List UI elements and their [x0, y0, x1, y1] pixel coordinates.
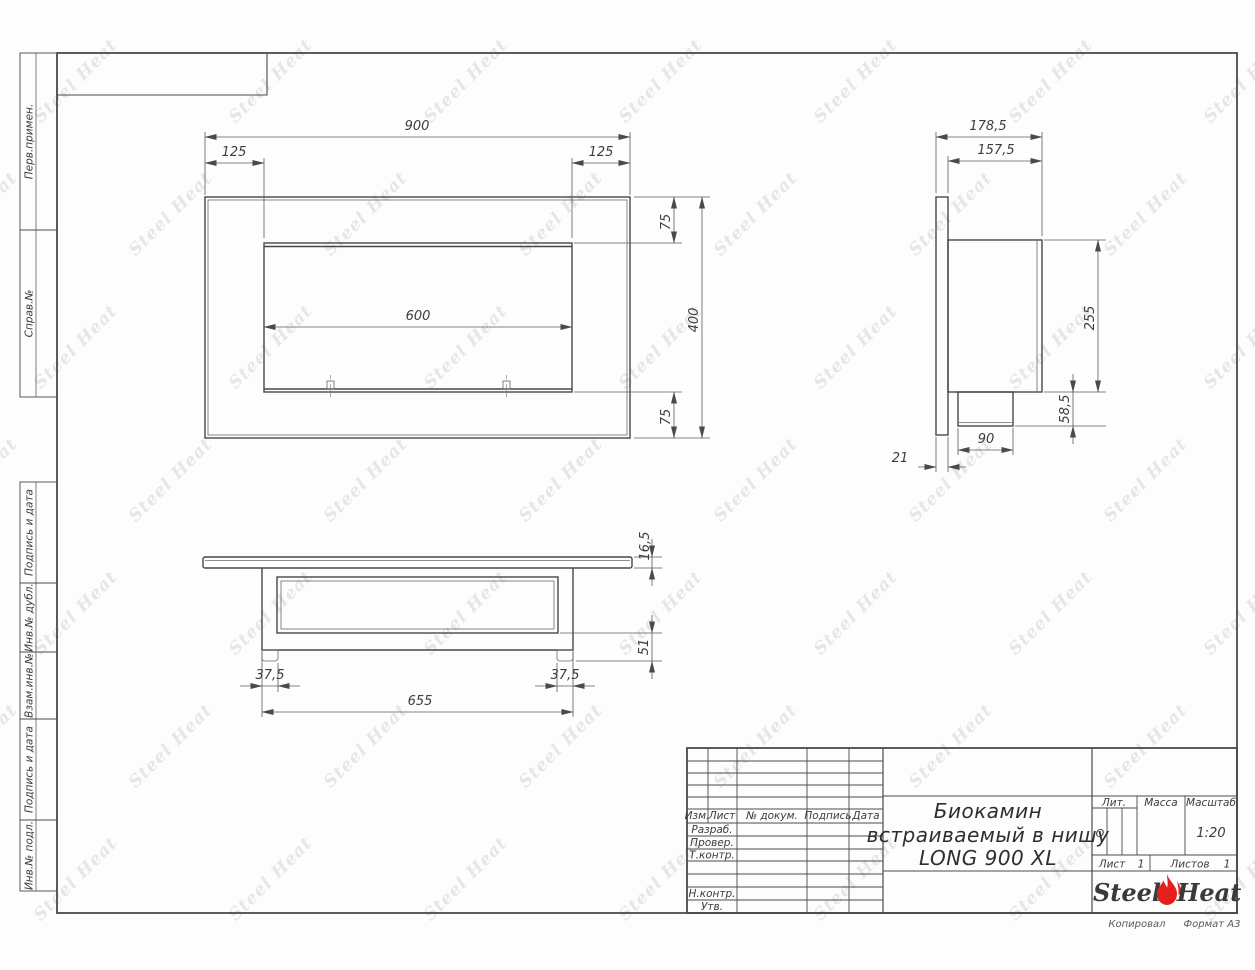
sheets-value: 1: [1224, 858, 1231, 871]
bottom-view: [203, 557, 632, 661]
dim-side-panel-thickness: 21: [892, 437, 966, 472]
scale-value: 1:20: [1196, 826, 1225, 841]
col-list: Лист: [708, 810, 736, 822]
dim-front-top-offset-value: 75: [659, 214, 674, 231]
change-table-header: Изм. Лист № докум. Подпись Дата: [685, 810, 880, 822]
lit-mass-scale: Лит. Масса Масштаб О 1:20: [1096, 797, 1237, 841]
dim-bottom-body-length: 655: [262, 694, 573, 712]
dim-front-right-offset: 125: [572, 145, 630, 238]
title-line-2: встраиваемый в нишу: [867, 823, 1110, 847]
dim-bottom-left-foot-offset: 37,5: [240, 652, 300, 717]
dim-side-body-depth: 157,5: [948, 143, 1042, 193]
dim-front-total-height-value: 400: [687, 308, 702, 333]
dim-front-top-offset: 75: [574, 197, 710, 243]
logo-heat-text: Heat: [1176, 878, 1242, 907]
dim-side-total-depth-value: 178,5: [969, 119, 1006, 134]
drawing-sheet: Steel HeatSteel HeatSteel HeatSteel Heat…: [0, 0, 1255, 970]
dim-front-left-offset: 125: [205, 145, 264, 238]
dim-front-right-offset-value: 125: [589, 145, 614, 160]
margin-label-inv-podl: Инв.№ подл.: [24, 821, 36, 890]
title-block: Изм. Лист № докум. Подпись Дата Разраб. …: [685, 748, 1242, 913]
row-tkontr: Т.контр.: [689, 850, 735, 862]
title-line-3: LONG 900 XL: [919, 846, 1057, 870]
sheet-label: Лист: [1098, 859, 1126, 871]
dim-bottom-panel-thickness: 16,5: [634, 532, 662, 586]
margin-label-podpis-data-1: Подпись и дата: [24, 489, 36, 576]
sheet-value: 1: [1138, 858, 1145, 871]
scale-label: Масштаб: [1186, 797, 1236, 809]
drawing-title: Биокамин встраиваемый в нишу LONG 900 XL: [867, 799, 1110, 870]
logo-steel-text: Steel: [1093, 878, 1161, 907]
dim-bottom-body-length-value: 655: [408, 694, 433, 709]
lit-value: О: [1096, 827, 1105, 840]
row-prover: Провер.: [690, 837, 734, 849]
dim-side-burner-width: 90: [958, 428, 1013, 455]
col-doc: № докум.: [745, 810, 798, 822]
dim-front-bottom-offset-value: 75: [659, 409, 674, 426]
sheet-frame: [57, 53, 1237, 913]
side-view-dimensions: 178,5 157,5 255 58,5 90: [892, 119, 1106, 472]
row-razrab: Разраб.: [691, 824, 732, 836]
steelheat-logo: Steel Heat: [1093, 874, 1241, 907]
dim-side-burner-width-value: 90: [978, 432, 995, 447]
left-margin-boxes: Перв.примен. Справ.№ Подпись и дата Инв.…: [20, 53, 57, 891]
dim-front-total-width: 900: [205, 119, 630, 195]
copied-note: Копировал: [1108, 919, 1166, 930]
dim-front-opening-width-value: 600: [406, 309, 431, 324]
dim-side-body-height: 255: [1044, 240, 1106, 392]
dim-bottom-right-foot-offset: 37,5: [535, 652, 595, 717]
foot-right: [557, 650, 573, 661]
foot-left: [262, 650, 278, 661]
dim-side-body-height-value: 255: [1083, 306, 1098, 331]
staff-rows: Разраб. Провер. Т.контр. Н.контр. Утв.: [689, 824, 736, 913]
dim-front-opening-width: 600: [264, 309, 572, 327]
row-nkontr: Н.контр.: [689, 888, 736, 900]
dim-side-burner-height: 58,5: [1015, 374, 1106, 444]
dim-bottom-left-foot-offset-value: 37,5: [256, 668, 285, 683]
row-utv: Утв.: [701, 901, 723, 913]
dim-side-burner-height-value: 58,5: [1058, 395, 1073, 424]
drawing-canvas: Перв.примен. Справ.№ Подпись и дата Инв.…: [0, 0, 1255, 970]
dim-side-panel-thickness-value: 21: [892, 451, 909, 466]
margin-label-podpis-data-2: Подпись и дата: [24, 726, 36, 813]
dim-side-total-depth: 178,5: [936, 119, 1042, 236]
dim-front-total-height: 400: [634, 197, 710, 438]
burner-clip-right: [503, 375, 510, 398]
side-view: [936, 197, 1042, 435]
sheets-label: Листов: [1169, 859, 1209, 871]
margin-label-vzam-inv: Взам.инв.№: [24, 653, 36, 718]
dim-front-left-offset-value: 125: [222, 145, 247, 160]
dim-front-total-width-value: 900: [405, 119, 430, 134]
format-note: Формат А3: [1184, 919, 1241, 930]
lit-label: Лит.: [1101, 797, 1126, 809]
col-date: Дата: [851, 810, 879, 822]
mass-label: Масса: [1144, 797, 1177, 809]
sheet-info: Лист 1 Листов 1: [1098, 858, 1231, 871]
front-view-dimensions: 900 125 125 75 400: [205, 119, 710, 438]
title-line-1: Биокамин: [934, 799, 1042, 823]
margin-label-perv-primen: Перв.примен.: [24, 104, 36, 179]
bottom-view-dimensions: 16,5 51 37,5 37,5 655: [240, 532, 662, 717]
burner-clip-left: [327, 375, 334, 398]
dim-side-body-depth-value: 157,5: [977, 143, 1014, 158]
col-sign: Подпись: [804, 810, 851, 822]
margin-label-inv-dubl: Инв.№ дубл.: [24, 583, 36, 652]
margin-label-sprav-no: Справ.№: [24, 290, 36, 338]
dim-bottom-right-foot-offset-value: 37,5: [551, 668, 580, 683]
dim-front-bottom-offset: 75: [574, 392, 682, 438]
dim-bottom-foot-height-value: 51: [637, 639, 652, 656]
col-izm: Изм.: [685, 810, 710, 822]
footer-notes: Копировал Формат А3: [1108, 919, 1240, 930]
dim-bottom-panel-thickness-value: 16,5: [638, 532, 653, 561]
